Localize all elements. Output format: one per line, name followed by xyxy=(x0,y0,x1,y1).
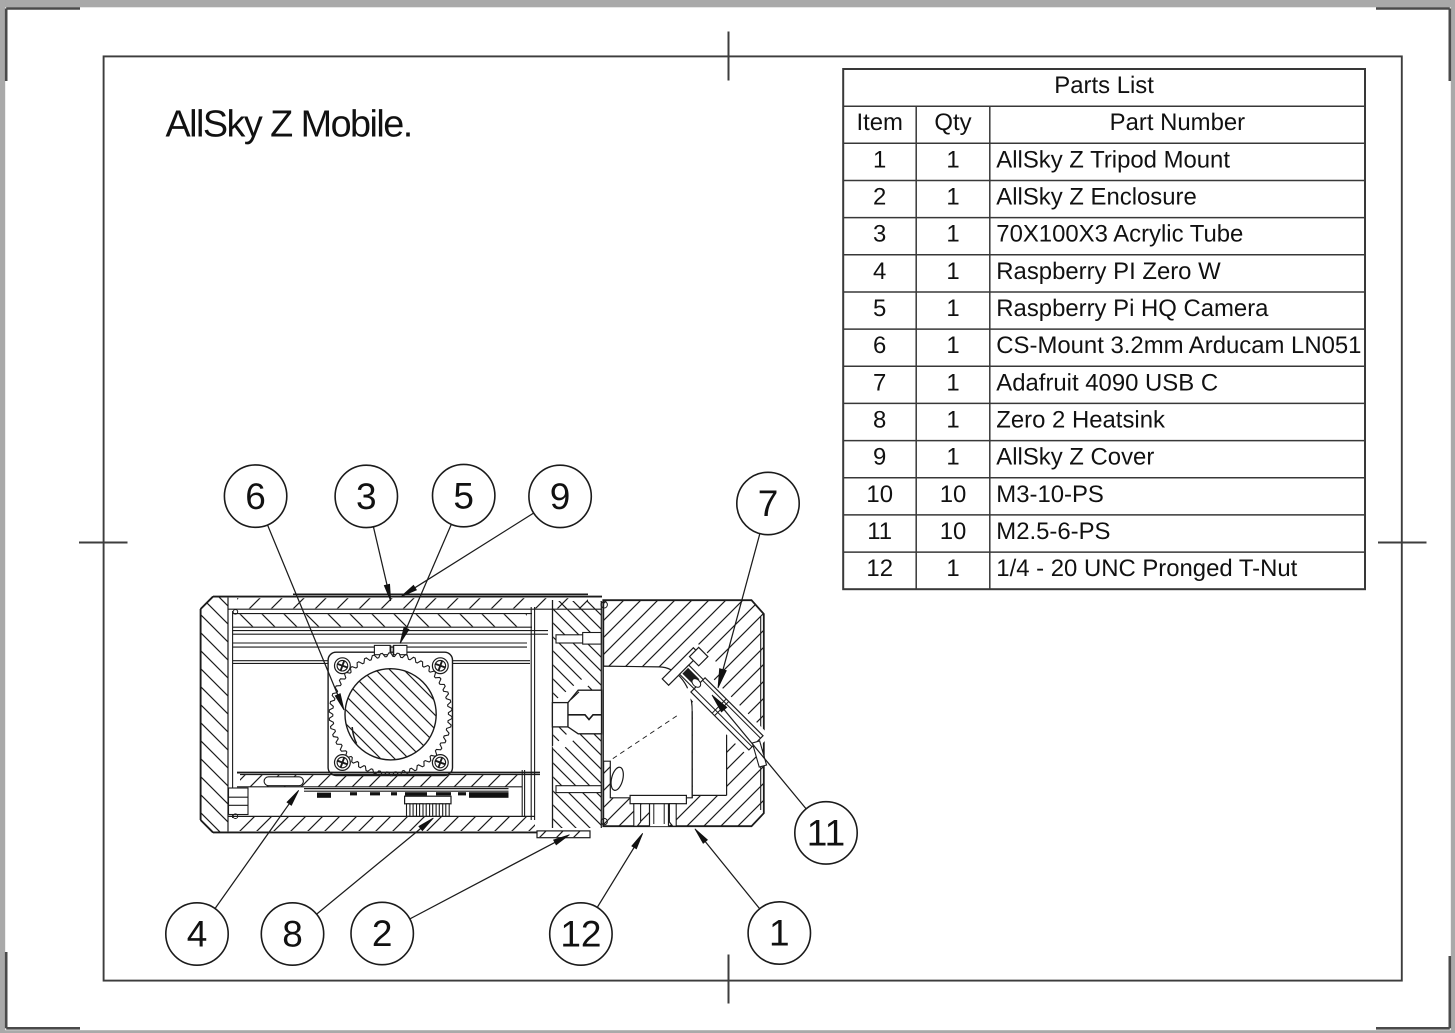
svg-text:1: 1 xyxy=(946,295,959,322)
svg-text:3: 3 xyxy=(356,476,377,517)
svg-text:11: 11 xyxy=(867,518,892,545)
svg-text:1: 1 xyxy=(946,406,959,433)
svg-text:Part Number: Part Number xyxy=(1110,109,1245,136)
svg-text:Raspberry Pi HQ Camera: Raspberry Pi HQ Camera xyxy=(996,295,1269,322)
svg-text:10: 10 xyxy=(866,481,893,508)
svg-text:M3-10-PS: M3-10-PS xyxy=(996,481,1104,508)
svg-text:M2.5-6-PS: M2.5-6-PS xyxy=(996,518,1110,545)
svg-text:4: 4 xyxy=(873,258,886,285)
svg-text:3: 3 xyxy=(873,221,886,248)
svg-text:11: 11 xyxy=(807,813,845,854)
svg-text:AllSky Z Enclosure: AllSky Z Enclosure xyxy=(996,184,1196,211)
svg-text:1: 1 xyxy=(946,369,959,396)
svg-text:12: 12 xyxy=(866,555,893,582)
svg-text:CS-Mount 3.2mm Arducam LN051: CS-Mount 3.2mm Arducam LN051 xyxy=(996,332,1361,359)
svg-text:1: 1 xyxy=(946,184,959,211)
svg-text:1: 1 xyxy=(946,444,959,471)
svg-text:1: 1 xyxy=(946,221,959,248)
svg-text:7: 7 xyxy=(758,483,779,524)
svg-text:5: 5 xyxy=(453,475,474,516)
svg-text:6: 6 xyxy=(873,332,886,359)
svg-text:1: 1 xyxy=(946,258,959,285)
svg-text:1: 1 xyxy=(946,332,959,359)
svg-text:Zero 2 Heatsink: Zero 2 Heatsink xyxy=(996,406,1165,433)
svg-text:10: 10 xyxy=(940,518,967,545)
svg-text:6: 6 xyxy=(245,476,266,517)
svg-text:1: 1 xyxy=(769,913,790,954)
svg-text:AllSky Z Mobile.: AllSky Z Mobile. xyxy=(166,104,412,146)
svg-text:Parts List: Parts List xyxy=(1054,72,1154,99)
svg-text:1: 1 xyxy=(946,555,959,582)
svg-text:4: 4 xyxy=(187,914,208,955)
svg-text:2: 2 xyxy=(372,913,393,954)
svg-text:2: 2 xyxy=(873,184,886,211)
svg-text:1: 1 xyxy=(873,146,886,173)
svg-text:Qty: Qty xyxy=(934,109,971,136)
svg-text:10: 10 xyxy=(940,481,967,508)
svg-text:7: 7 xyxy=(873,369,886,396)
svg-text:12: 12 xyxy=(560,914,601,955)
svg-text:Adafruit 4090 USB C: Adafruit 4090 USB C xyxy=(996,369,1218,396)
svg-text:9: 9 xyxy=(550,476,571,517)
svg-text:AllSky Z Tripod Mount: AllSky Z Tripod Mount xyxy=(996,146,1230,173)
svg-text:8: 8 xyxy=(282,914,303,955)
svg-text:1/4 - 20 UNC Pronged T-Nut: 1/4 - 20 UNC Pronged T-Nut xyxy=(996,555,1297,582)
svg-text:70X100X3 Acrylic Tube: 70X100X3 Acrylic Tube xyxy=(996,221,1243,248)
svg-text:AllSky Z Cover: AllSky Z Cover xyxy=(996,444,1154,471)
svg-text:1: 1 xyxy=(946,146,959,173)
svg-text:5: 5 xyxy=(873,295,886,322)
svg-text:8: 8 xyxy=(873,406,886,433)
svg-text:Item: Item xyxy=(856,109,902,136)
svg-text:9: 9 xyxy=(873,444,886,471)
svg-text:Raspberry PI Zero W: Raspberry PI Zero W xyxy=(996,258,1221,285)
